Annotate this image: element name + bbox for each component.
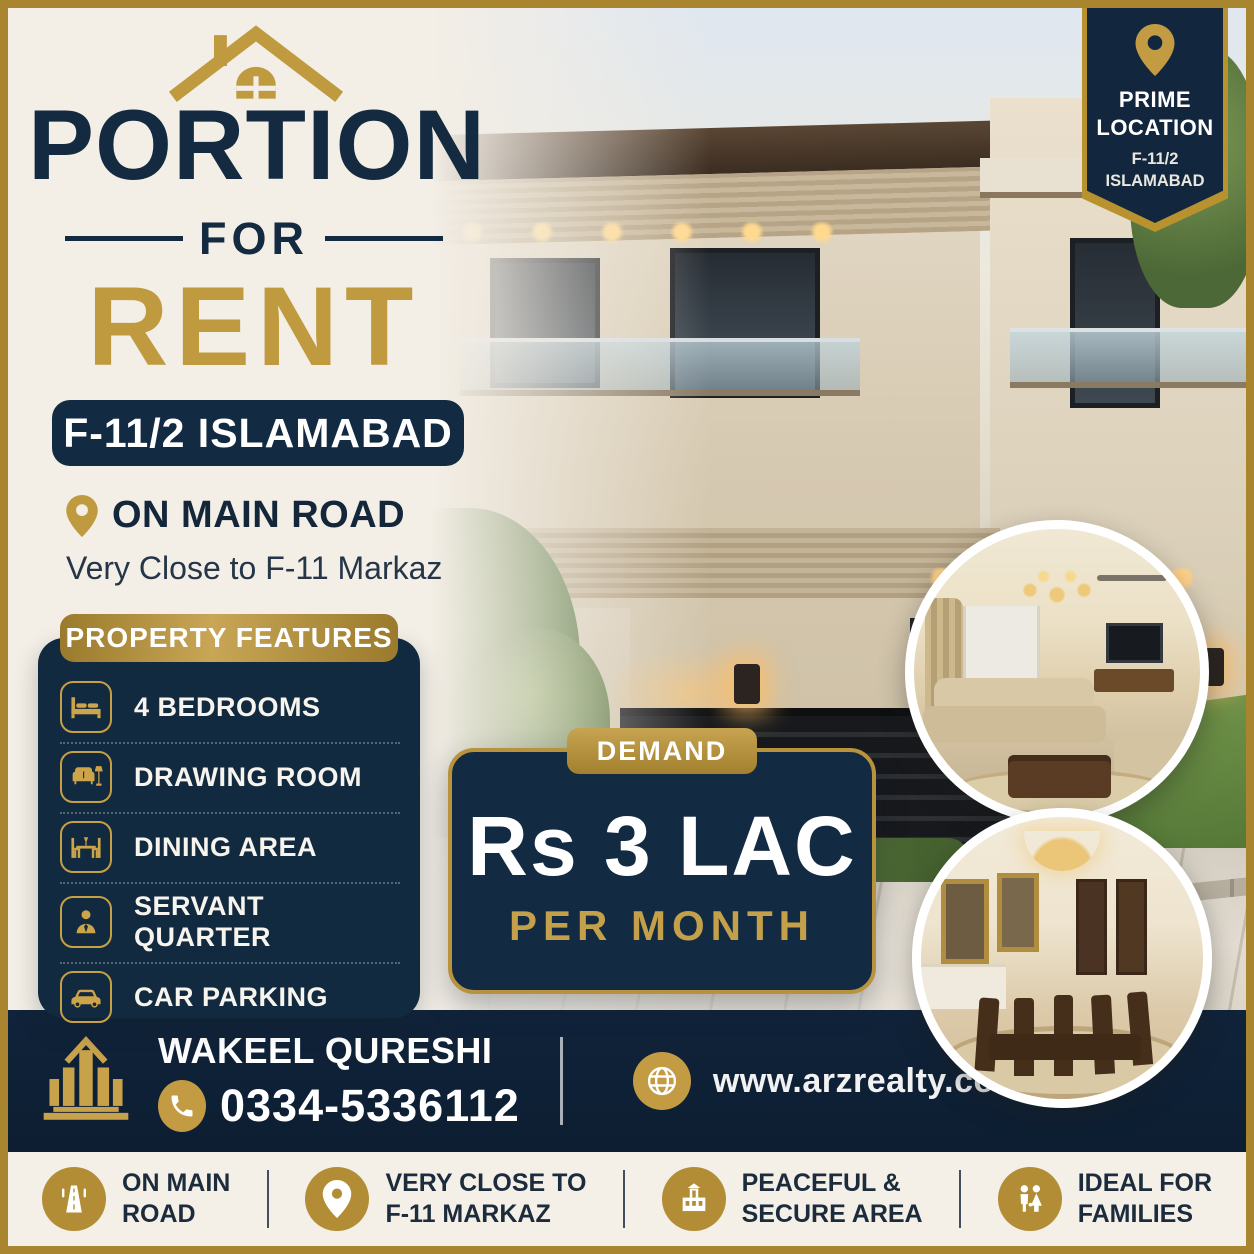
highlight-label: VERY CLOSE TO	[385, 1168, 586, 1199]
feature-label: 4 BEDROOMS	[134, 692, 321, 723]
feature-row-bedrooms: 4 BEDROOMS	[60, 674, 400, 744]
sofa-icon	[60, 751, 112, 803]
feature-row-parking: CAR PARKING	[60, 964, 400, 1032]
title-for-row: FOR	[28, 213, 480, 265]
price-period: PER MONTH	[509, 902, 815, 950]
main-road-row: ON MAIN ROAD	[66, 494, 405, 537]
dining-room-photo	[912, 808, 1212, 1108]
globe-icon	[633, 1052, 691, 1110]
contact-block: WAKEEL QURESHI 0334-5336112	[158, 1030, 520, 1132]
pin-icon	[66, 495, 98, 537]
features-list: 4 BEDROOMS DRAWING ROOM	[60, 674, 400, 1032]
location-badge: F-11/2 ISLAMABAD	[52, 400, 464, 466]
family-icon	[998, 1167, 1062, 1231]
highlight-secure-area: PEACEFUL & SECURE AREA	[662, 1167, 923, 1231]
building-icon	[662, 1167, 726, 1231]
feature-row-drawing-room: DRAWING ROOM	[60, 744, 400, 814]
highlight-label: F-11 MARKAZ	[385, 1199, 586, 1230]
phone-icon	[158, 1080, 206, 1132]
highlight-markaz: VERY CLOSE TO F-11 MARKAZ	[305, 1167, 586, 1231]
divider	[560, 1037, 563, 1125]
feature-row-servant: SERVANT QUARTER	[60, 884, 400, 964]
feature-label: SERVANT QUARTER	[134, 891, 400, 953]
bed-icon	[60, 681, 112, 733]
demand-box: DEMAND Rs 3 LAC PER MONTH	[448, 748, 876, 994]
dining-table-icon	[60, 821, 112, 873]
subtitle: Very Close to F-11 Markaz	[66, 550, 442, 587]
page-title: PORTION	[28, 92, 480, 199]
feature-label: DRAWING ROOM	[134, 762, 362, 793]
divider	[267, 1170, 270, 1228]
agent-name: WAKEEL QURESHI	[158, 1030, 520, 1072]
prime-location-ribbon: PRIME LOCATION F-11/2 ISLAMABAD	[1082, 8, 1228, 232]
property-features-panel: PROPERTY FEATURES 4 BEDROOMS	[38, 638, 420, 1018]
highlight-families: IDEAL FOR FAMILIES	[998, 1167, 1212, 1231]
highlight-main-road: ON MAIN ROAD	[42, 1167, 230, 1231]
living-room-photo	[905, 520, 1209, 824]
highlight-label: FAMILIES	[1078, 1199, 1212, 1230]
divider	[65, 236, 183, 241]
highlight-label: ROAD	[122, 1199, 230, 1230]
prime-location-inner: PRIME LOCATION F-11/2 ISLAMABAD	[1087, 8, 1223, 223]
phone-row[interactable]: 0334-5336112	[158, 1080, 520, 1132]
ribbon-line1: PRIME	[1119, 86, 1191, 114]
rental-flyer: PORTION FOR RENT F-11/2 ISLAMABAD ON MAI…	[0, 0, 1254, 1254]
highlights-strip: ON MAIN ROAD VERY CLOSE TO F-11 MARKAZ	[8, 1152, 1246, 1246]
ribbon-line4: ISLAMABAD	[1106, 170, 1205, 192]
ribbon-line2: LOCATION	[1096, 114, 1213, 142]
demand-badge: DEMAND	[567, 728, 757, 774]
divider	[623, 1170, 626, 1228]
price: Rs 3 LAC	[467, 804, 856, 888]
feature-label: DINING AREA	[134, 832, 317, 863]
highlight-label: ON MAIN	[122, 1168, 230, 1199]
pin-icon	[1135, 24, 1175, 76]
road-icon	[42, 1167, 106, 1231]
divider	[959, 1170, 962, 1228]
title-for: FOR	[199, 213, 309, 265]
person-icon	[60, 896, 112, 948]
highlight-label: SECURE AREA	[742, 1199, 923, 1230]
highlight-label: IDEAL FOR	[1078, 1168, 1212, 1199]
agency-building-logo	[36, 1027, 136, 1136]
feature-row-dining: DINING AREA	[60, 814, 400, 884]
title-rent: RENT	[28, 271, 480, 383]
main-road-label: ON MAIN ROAD	[112, 494, 405, 537]
feature-label: CAR PARKING	[134, 982, 328, 1013]
highlight-label: PEACEFUL &	[742, 1168, 923, 1199]
phone-number[interactable]: 0334-5336112	[220, 1080, 520, 1132]
car-icon	[60, 971, 112, 1023]
ribbon-line3: F-11/2	[1132, 148, 1179, 170]
divider	[325, 236, 443, 241]
property-features-header: PROPERTY FEATURES	[60, 614, 398, 662]
headline-block: PORTION FOR RENT	[28, 92, 480, 383]
pin-icon	[305, 1167, 369, 1231]
